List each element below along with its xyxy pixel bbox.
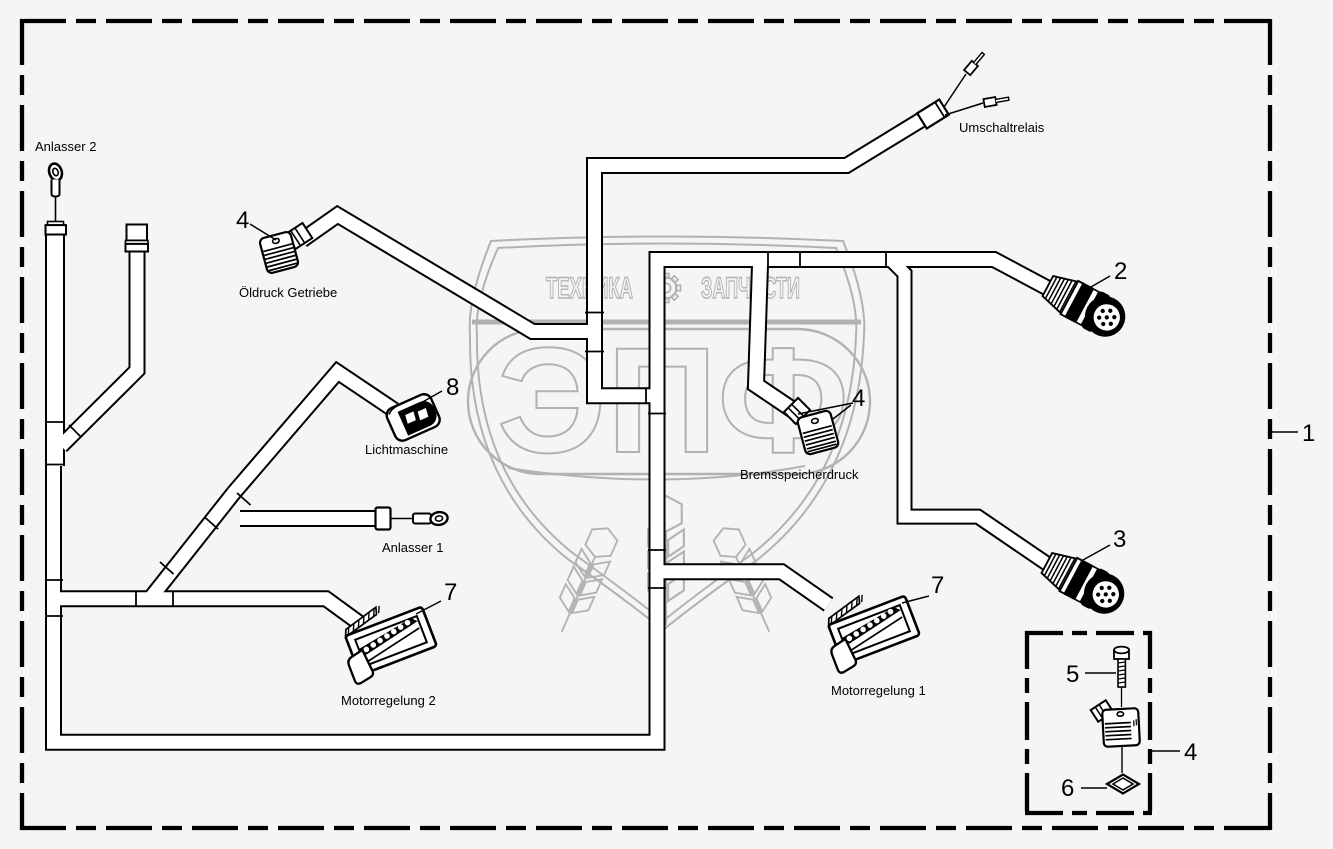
svg-text:Anlasser 1: Anlasser 1: [382, 540, 443, 555]
svg-text:3: 3: [1113, 526, 1126, 553]
svg-text:4: 4: [1184, 739, 1197, 766]
svg-text:Bremsspeicherdruck: Bremsspeicherdruck: [740, 467, 859, 482]
svg-text:2: 2: [1114, 258, 1127, 285]
svg-text:7: 7: [931, 572, 944, 599]
svg-text:5: 5: [1066, 661, 1079, 688]
svg-text:1: 1: [1302, 420, 1315, 447]
svg-text:Lichtmaschine: Lichtmaschine: [365, 442, 448, 457]
svg-text:Umschaltrelais: Umschaltrelais: [959, 120, 1045, 135]
svg-text:4: 4: [852, 385, 865, 412]
svg-text:8: 8: [446, 374, 459, 401]
svg-text:7: 7: [444, 579, 457, 606]
svg-text:6: 6: [1061, 775, 1074, 802]
svg-text:Anlasser 2: Anlasser 2: [35, 139, 96, 154]
svg-text:Öldruck Getriebe: Öldruck Getriebe: [239, 285, 337, 300]
svg-text:4: 4: [236, 207, 249, 234]
svg-text:Motorregelung 1: Motorregelung 1: [831, 683, 926, 698]
svg-text:Motorregelung 2: Motorregelung 2: [341, 693, 436, 708]
